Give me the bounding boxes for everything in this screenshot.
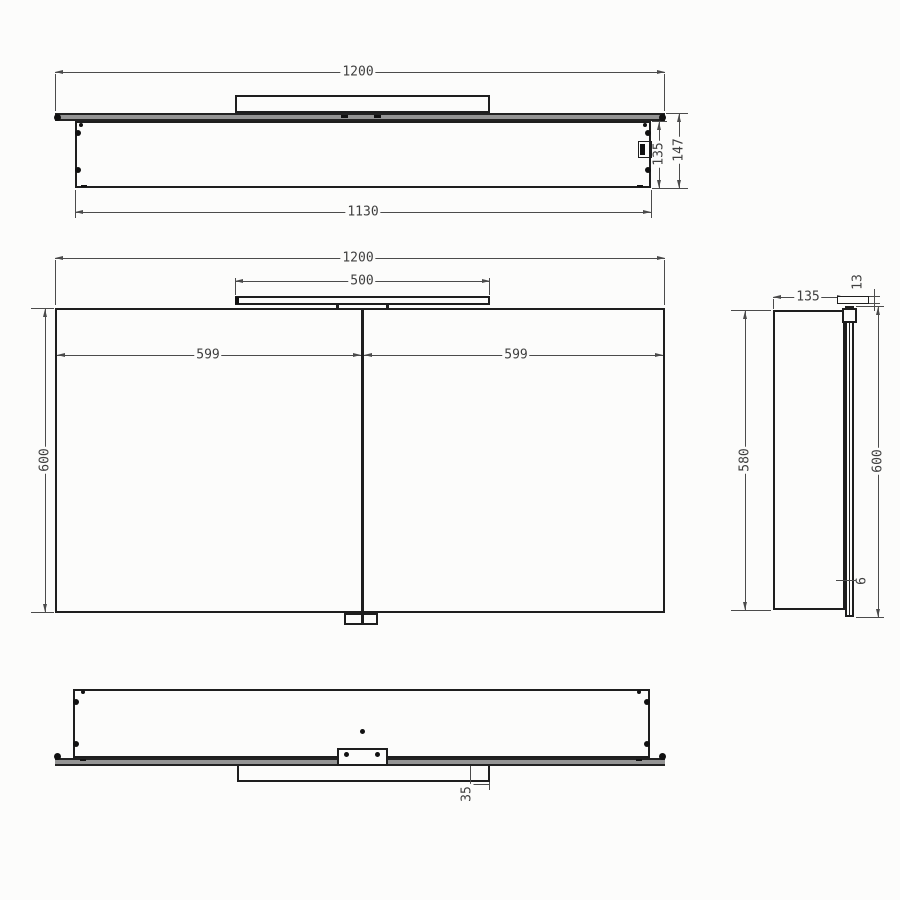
- bottom-view: 35: [0, 0, 900, 900]
- bracket-screw-dot: [375, 752, 380, 757]
- hinge-dot: [659, 753, 666, 760]
- bracket-outline: [337, 748, 388, 766]
- light-fixture-outline: [237, 766, 490, 782]
- screw-dot: [360, 729, 365, 734]
- technical-drawing-canvas: 1200 1130 135: [0, 0, 900, 900]
- hinge-dot: [637, 690, 641, 694]
- hinge-dot: [81, 690, 85, 694]
- hinge-dot: [644, 741, 650, 747]
- hinge-mark: [636, 759, 642, 761]
- hinge-dot: [644, 699, 650, 705]
- bracket-screw-dot: [344, 752, 349, 757]
- dim-label-light-inset: 35: [461, 784, 474, 804]
- hinge-mark: [80, 759, 86, 761]
- hinge-dot: [73, 741, 79, 747]
- hinge-dot: [54, 753, 61, 760]
- hinge-dot: [73, 699, 79, 705]
